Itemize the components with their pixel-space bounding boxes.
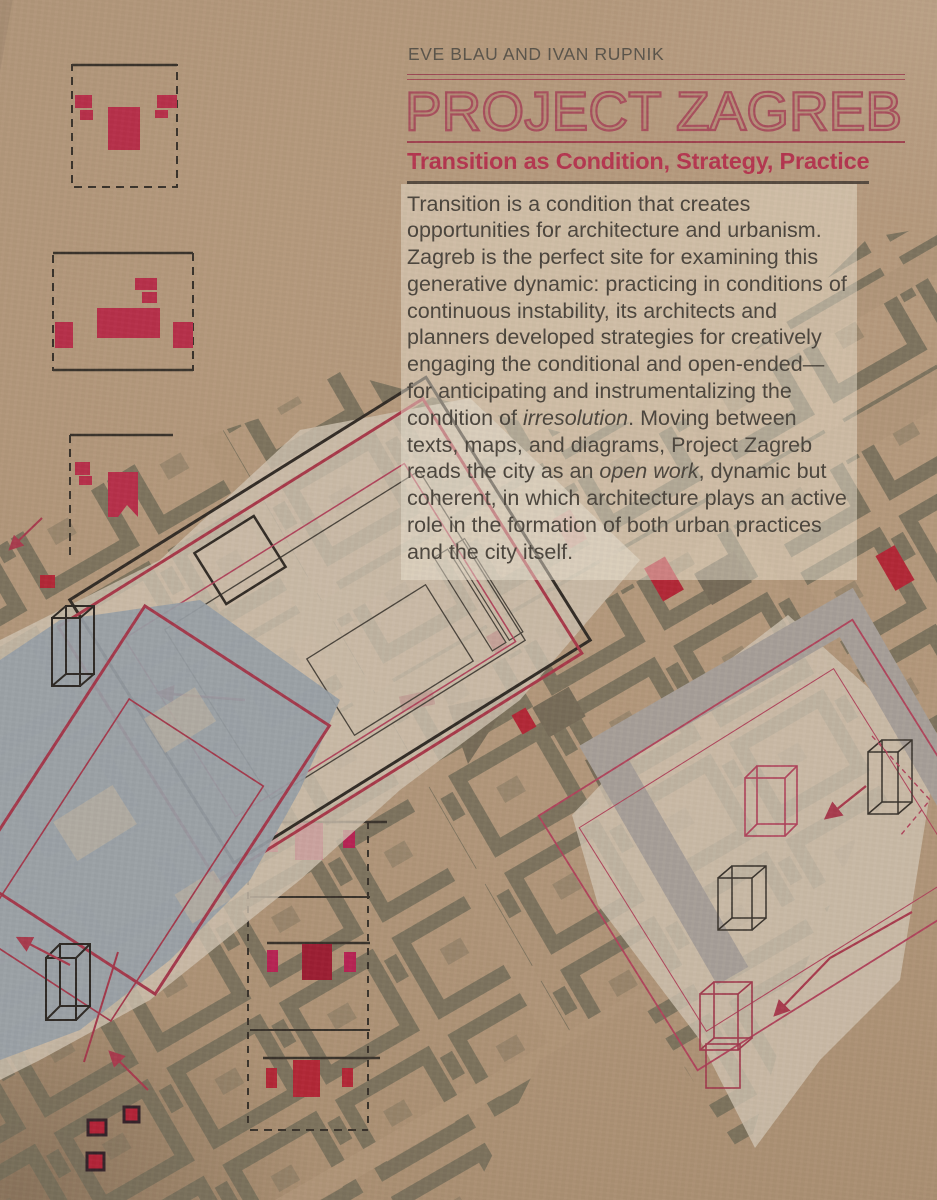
book-subtitle: Transition as Condition, Strategy, Pract… bbox=[407, 148, 907, 175]
figure-ground-diagram-1 bbox=[72, 65, 177, 187]
cover-blurb: Transition is a condition that creates o… bbox=[401, 184, 857, 580]
blurb-italic-open-work: open work bbox=[599, 459, 698, 483]
blurb-text: Transition is a condition that creates o… bbox=[407, 192, 847, 430]
book-cover: EVE BLAU AND IVAN RUPNIK PROJECT ZAGREB … bbox=[0, 0, 937, 1200]
book-title: PROJECT ZAGREB bbox=[405, 83, 907, 139]
blurb-italic-irresolution: irresolution bbox=[523, 406, 628, 430]
figure-ground-diagram-2 bbox=[53, 253, 193, 370]
cover-masthead: EVE BLAU AND IVAN RUPNIK PROJECT ZAGREB … bbox=[407, 44, 907, 580]
authors-line: EVE BLAU AND IVAN RUPNIK bbox=[408, 44, 905, 65]
